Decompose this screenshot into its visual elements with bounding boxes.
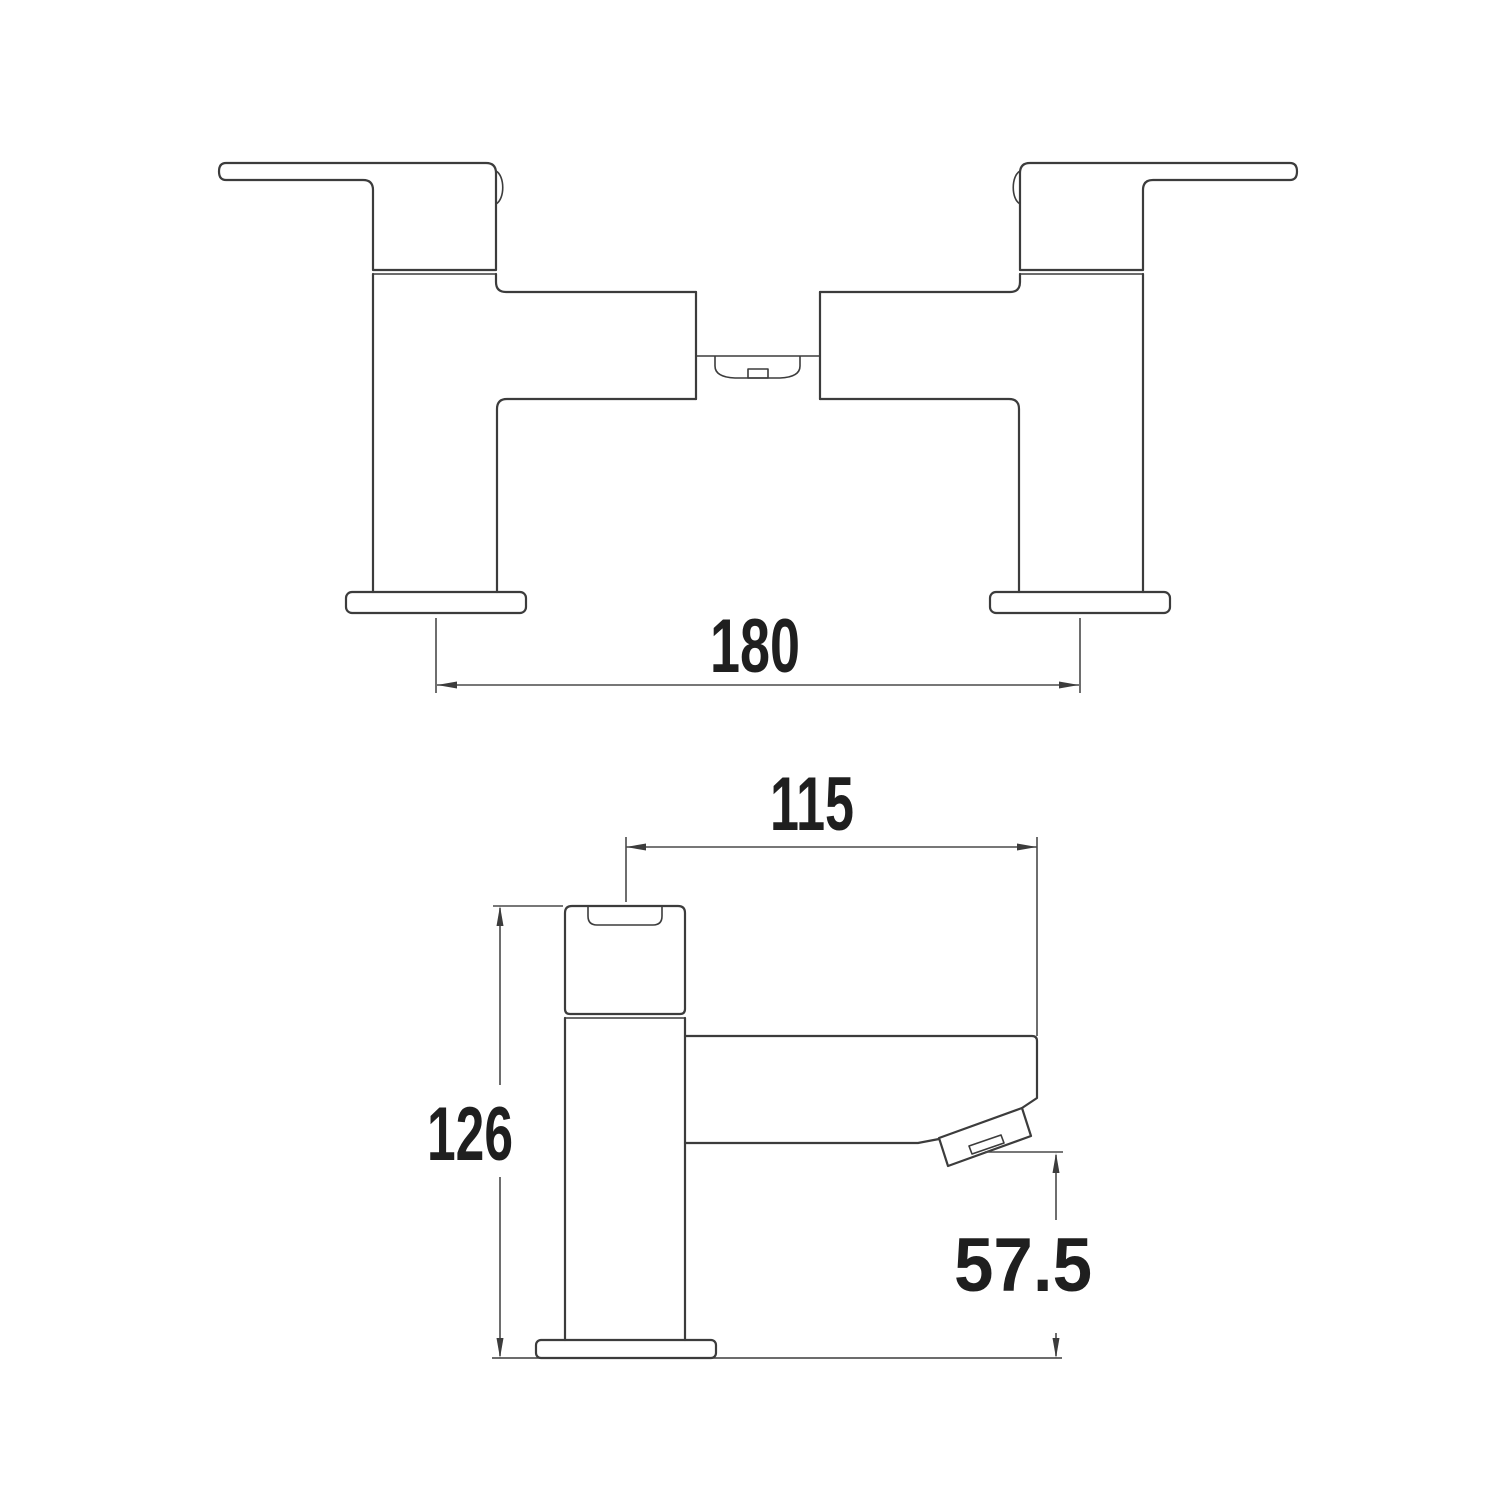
dimension-front-width: 180 <box>436 604 1080 693</box>
dimension-115-extension-lines <box>626 837 1037 1036</box>
side-view: 115 126 57.5 <box>427 762 1092 1358</box>
dimension-spout-outlet-height: 57.5 <box>954 1152 1092 1358</box>
right-base-flange <box>990 592 1170 613</box>
right-handle-joint-lines <box>1020 270 1143 274</box>
dimension-side-height: 126 <box>427 906 563 1358</box>
front-left-handle <box>219 163 503 274</box>
spout-outlet-recess <box>715 356 800 378</box>
spout-block-edges <box>696 292 820 399</box>
dimension-575-arrow-bottom <box>1053 1338 1060 1358</box>
dimension-spout-outlet-height-label: 57.5 <box>954 1223 1092 1308</box>
left-pillar-inner-top-corner <box>496 274 696 292</box>
left-base-flange <box>346 592 526 613</box>
side-handle-block <box>565 906 685 1014</box>
dimension-side-depth: 115 <box>626 762 1037 1036</box>
left-handle-joint-lines <box>373 270 496 274</box>
dimension-126-arrow-top <box>497 906 504 926</box>
spout-top-edge <box>685 1036 1037 1108</box>
right-pillar-inner-bottom-corner <box>820 399 1019 592</box>
side-spout <box>685 1036 1037 1166</box>
left-handle-lever-outline <box>219 163 496 270</box>
side-handle-notch <box>588 906 662 925</box>
dimension-575-arrow-top <box>1053 1153 1060 1173</box>
dimension-180-arrow-right <box>1059 682 1079 689</box>
dimension-side-height-label: 126 <box>427 1092 513 1177</box>
dimension-126-arrow-bottom <box>497 1338 504 1358</box>
front-spout-block <box>696 292 820 399</box>
tap-dimension-diagram: 180 <box>0 0 1500 1500</box>
front-right-pillar <box>820 274 1170 613</box>
spout-outlet-box <box>939 1108 1031 1166</box>
front-right-handle <box>1013 163 1297 274</box>
side-base-flange <box>536 1340 716 1358</box>
technical-drawing-canvas: 180 <box>0 0 1500 1500</box>
left-pillar-inner-bottom-corner <box>497 399 696 592</box>
front-view: 180 <box>219 163 1297 693</box>
dimension-180-arrow-left <box>437 682 457 689</box>
spout-bottom-edge <box>685 1139 939 1143</box>
dimension-side-depth-label: 115 <box>770 762 854 847</box>
front-left-pillar <box>346 274 696 613</box>
spout-aerator <box>748 369 768 378</box>
dimension-115-arrow-right <box>1017 844 1037 851</box>
side-handle <box>565 906 685 1014</box>
right-pillar-inner-top-corner <box>820 274 1020 292</box>
right-handle-lever-outline <box>1020 163 1297 270</box>
dimension-115-arrow-left <box>626 844 646 851</box>
dimension-front-width-label: 180 <box>710 604 800 689</box>
side-body-edges <box>565 1018 685 1340</box>
